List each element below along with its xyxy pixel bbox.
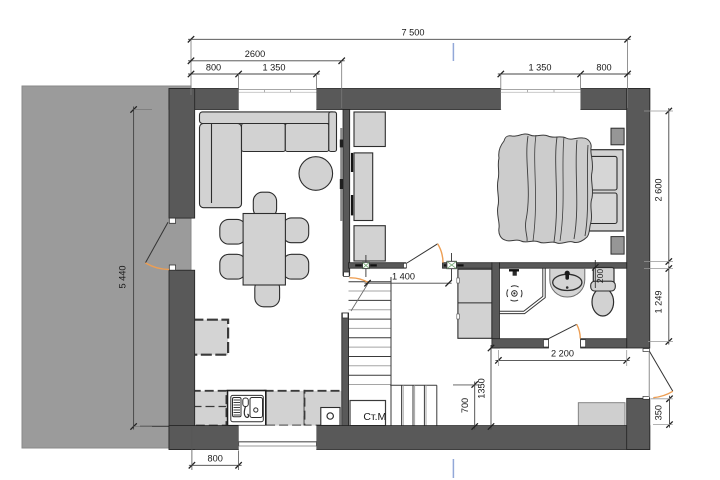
svg-text:1 350: 1 350 (529, 63, 552, 73)
svg-text:200: 200 (595, 269, 605, 283)
svg-text:1 400: 1 400 (392, 271, 415, 281)
svg-text:800: 800 (208, 454, 223, 464)
svg-text:800: 800 (206, 63, 221, 73)
svg-text:1 350: 1 350 (263, 63, 286, 73)
svg-text:1 249: 1 249 (654, 291, 664, 314)
svg-text:2 200: 2 200 (551, 349, 574, 359)
svg-text:350: 350 (653, 405, 663, 420)
svg-text:2 600: 2 600 (654, 179, 664, 202)
svg-text:800: 800 (596, 63, 611, 73)
svg-text:Ст.М: Ст.М (363, 411, 386, 423)
svg-text:5 440: 5 440 (118, 266, 128, 289)
svg-text:7 500: 7 500 (402, 28, 425, 38)
svg-text:700: 700 (460, 398, 470, 413)
svg-text:2600: 2600 (245, 49, 265, 59)
svg-text:1350: 1350 (477, 378, 487, 398)
